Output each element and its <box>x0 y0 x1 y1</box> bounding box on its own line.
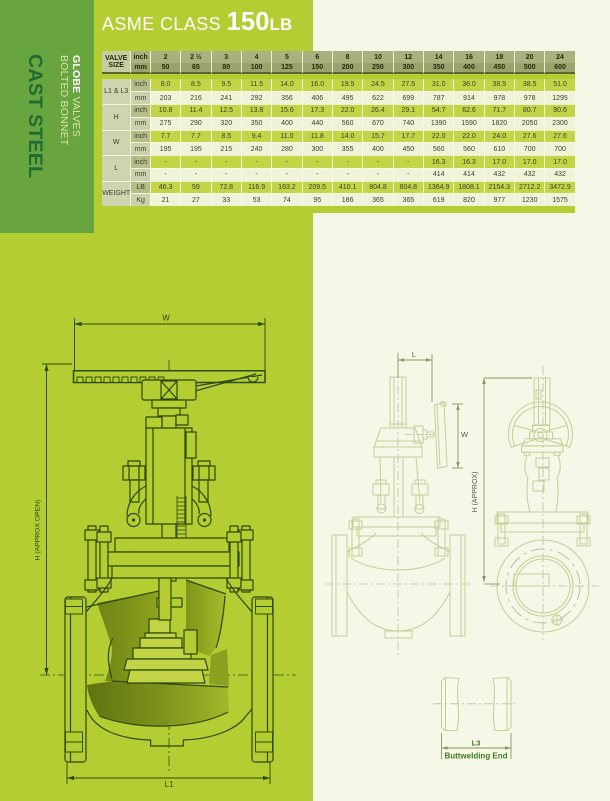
svg-text:W: W <box>162 314 170 323</box>
svg-text:H (APPROX): H (APPROX) <box>472 472 479 513</box>
svg-text:Buttwelding End: Buttwelding End <box>444 752 507 761</box>
svg-text:L1: L1 <box>165 780 174 789</box>
svg-text:H (APPROX OPEN): H (APPROX OPEN) <box>35 500 42 561</box>
svg-text:W: W <box>461 430 469 439</box>
svg-text:L: L <box>412 350 416 359</box>
svg-text:L3: L3 <box>472 739 481 748</box>
